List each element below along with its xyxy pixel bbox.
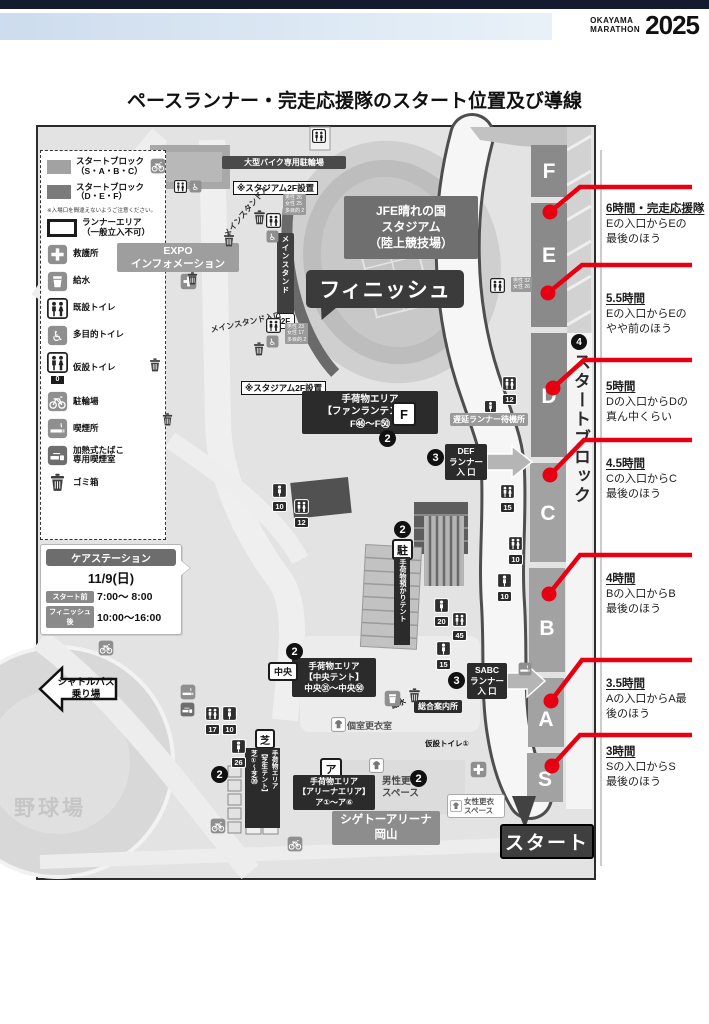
private-changing-label: 個室更衣室	[347, 719, 392, 732]
start-label: スタート	[500, 824, 594, 859]
smoking-icon	[518, 662, 532, 676]
annotation-3-5h: 3.5時間Aの入口からA最 後のほう	[606, 675, 707, 721]
toilet-icon	[266, 318, 281, 333]
finish-label: フィニッシュ	[306, 270, 464, 308]
water-icon	[384, 690, 401, 707]
temp-toilet-icon: 0	[47, 352, 68, 385]
map-legend: スタートブロック （S・A・B・C） スタートブロック （D・E・F） ※入場口…	[40, 150, 166, 540]
toilet-icon	[47, 298, 68, 319]
heated-tobacco-icon	[180, 702, 195, 717]
legend-label: 駐輪場	[73, 397, 99, 407]
wheelchair-icon	[189, 180, 202, 193]
womens-changing-box: 女性更衣 スペース	[447, 794, 505, 818]
bicycle-icon	[210, 818, 226, 834]
toilet-icon	[174, 180, 187, 193]
baggage-arena-label: 手荷物エリア 【アリーナエリア】 ア①～ア⑥	[293, 775, 375, 810]
care-row-label: フィニッシュ後	[46, 606, 94, 628]
toilet-badge: 17	[205, 706, 220, 735]
sabc-entrance-label: SABC ランナー 入 口	[467, 663, 507, 699]
care-row-time: 10:00～16:00	[97, 610, 161, 625]
toilet-badge: 12	[294, 499, 309, 528]
stadium-2f-note-top: ※スタジアム2F設置	[233, 181, 318, 195]
smoking-icon	[180, 684, 196, 700]
shuttle-bus-label: シャトルバス 乗り場	[57, 677, 115, 701]
toilet-badge: 10	[497, 573, 512, 602]
legend-label: 喫煙所	[73, 424, 99, 434]
baggage-keep-label: 手荷物預かりテント	[394, 557, 410, 645]
toilet-badge: 45	[452, 612, 467, 641]
care-row-time: 7:00～ 8:00	[97, 589, 152, 604]
trash-icon	[251, 208, 268, 227]
delay-runner-label: 遅延ランナー待機所	[450, 413, 528, 426]
toilet-badge: 10	[222, 706, 237, 735]
top-navy-bar	[0, 0, 709, 9]
legend-label: 既設トイレ	[73, 303, 116, 313]
annotation-4-5h: 4.5時間Cの入口からC 最後のほう	[606, 455, 707, 501]
first-aid-icon	[470, 761, 487, 778]
first-aid-icon	[47, 244, 68, 265]
toilet-icon	[266, 213, 281, 228]
trash-icon	[185, 270, 200, 287]
toilet-badge: 15	[436, 641, 451, 670]
toilet-badge: 26	[231, 739, 246, 768]
annotation-3h: 3時間Sの入口からS 最後のほう	[606, 743, 707, 789]
marker-circle-2: 2	[286, 643, 303, 660]
page-title: ペースランナー・完走応援隊のスタート位置及び導線	[0, 86, 709, 113]
header-blue-band	[0, 13, 552, 40]
wheelchair-icon	[47, 325, 68, 346]
toilet-capacity-label: 男性 26 女性 25 多目的 2	[283, 194, 306, 215]
toilet-badge: 10	[272, 483, 287, 512]
trash-icon	[406, 686, 423, 705]
trash-icon	[251, 340, 267, 358]
legend-label: ゴミ箱	[73, 478, 99, 488]
central-mark: 中央	[268, 662, 298, 681]
womens-changing-label: 女性更衣 スペース	[464, 797, 494, 815]
marker-circle-2: 2	[379, 430, 396, 447]
logo-year: 2025	[645, 10, 699, 41]
trash-icon	[147, 356, 163, 374]
legend-label: 多目的トイレ	[73, 330, 124, 340]
legend-label: スタートブロック （S・A・B・C）	[76, 157, 144, 177]
temp-toilet-handnote: 仮設トイレ①	[425, 738, 469, 749]
trash-icon	[47, 472, 68, 493]
bicycle-icon	[150, 158, 166, 174]
legend-label: 給水	[73, 276, 90, 286]
legend-label: 加熱式たばこ 専用喫煙室	[73, 446, 124, 466]
water-icon	[47, 271, 68, 292]
okayama-marathon-logo: OKAYAMA MARATHON 2025	[590, 10, 699, 41]
wheelchair-icon	[266, 335, 279, 348]
care-station-box: ケアステーション 11/9(日) スタート前7:00～ 8:00 フィニッシュ後…	[40, 544, 182, 635]
arena-name-label: シゲトーアリーナ 岡山	[332, 811, 440, 845]
marker-circle-2: 2	[410, 770, 427, 787]
baseball-field-label: 野球場	[14, 792, 86, 822]
bicycle-icon	[98, 640, 114, 656]
legend-label: ランナーエリア （一般立入不可）	[82, 218, 150, 238]
changing-icon	[369, 758, 384, 773]
trash-icon	[160, 411, 175, 428]
logo-wordmark: OKAYAMA MARATHON	[590, 17, 640, 34]
toilet-badge: 20	[434, 598, 449, 627]
changing-icon	[331, 717, 346, 732]
legend-label: 救護所	[73, 249, 99, 259]
marker-circle-3: 3	[427, 449, 444, 466]
toilet-badge: 10	[508, 536, 523, 565]
baggage-fanrun-label: 手荷物エリア 【ファンランテント】 F㊻～F㊿	[302, 391, 438, 434]
annotation-4h: 4時間Bの入口からB 最後のほう	[606, 570, 707, 616]
toilet-icon	[312, 129, 326, 143]
toilet-icon	[484, 400, 497, 413]
care-station-title: ケアステーション	[46, 549, 176, 566]
annotation-5h: 5時間Dの入口からDの 真ん中くらい	[606, 378, 707, 424]
fanrun-f-mark: F	[392, 402, 416, 426]
annotation-5-5h: 5.5時間Eの入口からEの やや前のほう	[606, 290, 707, 336]
main-stand-label: メインスタンド	[277, 233, 294, 315]
toilet-badge: 15	[500, 484, 515, 513]
legend-label: 仮設トイレ	[73, 363, 116, 373]
bike-parking-label: 大型バイク専用駐輪場	[222, 156, 346, 169]
toilet-icon	[490, 278, 505, 293]
marker-circle-2: 2	[394, 521, 411, 538]
bicycle-icon	[47, 391, 68, 412]
baggage-central-label: 手荷物エリア 【中央テント】 中央㉛～中央㊿	[292, 658, 376, 697]
annotation-6h: 6時間・完走応援隊Eの入口からEの 最後のほう	[606, 200, 707, 246]
care-station-date: 11/9(日)	[46, 568, 176, 587]
smoking-icon	[47, 418, 68, 439]
bicycle-icon	[287, 836, 303, 852]
toilet-capacity-label: 男性 23 女性 17 多目的 2	[285, 323, 308, 344]
trash-icon	[221, 231, 237, 249]
care-station-tail	[180, 560, 190, 576]
baggage-lawn-label: 手荷物エリア 【芝生テント】 芝①～芝⑳	[245, 748, 280, 828]
marker-circle-2: 2	[211, 766, 228, 783]
poster: ♿ OKAYAMA MARATHON 2025 ペースランナー・完走応援隊のスタ…	[0, 0, 709, 1024]
legend-label: スタートブロック （D・E・F）	[76, 183, 144, 203]
legend-note: ※入場口を間違えないようご注意ください。	[47, 206, 161, 214]
lawn-mark: 芝	[255, 729, 275, 749]
legend-swatch-def	[47, 185, 71, 199]
care-row-label: スタート前	[46, 591, 94, 603]
legend-runner-area-swatch	[47, 219, 77, 237]
toilet-capacity-label: 男性 32 女性 26	[511, 277, 532, 292]
legend-swatch-sabc	[47, 160, 71, 174]
marker-circle-4: 4	[571, 334, 587, 350]
def-entrance-label: DEF ランナー 入 口	[445, 444, 487, 480]
marker-circle-3: 3	[448, 672, 465, 689]
heated-tobacco-icon	[47, 445, 68, 466]
wheelchair-icon	[266, 230, 279, 243]
stadium-label: JFE晴れの国 スタジアム （陸上競技場）	[344, 196, 478, 259]
changing-icon	[450, 800, 462, 812]
start-block-vertical-label: スタートブロック	[568, 353, 593, 571]
toilet-badge: 12	[502, 376, 517, 405]
